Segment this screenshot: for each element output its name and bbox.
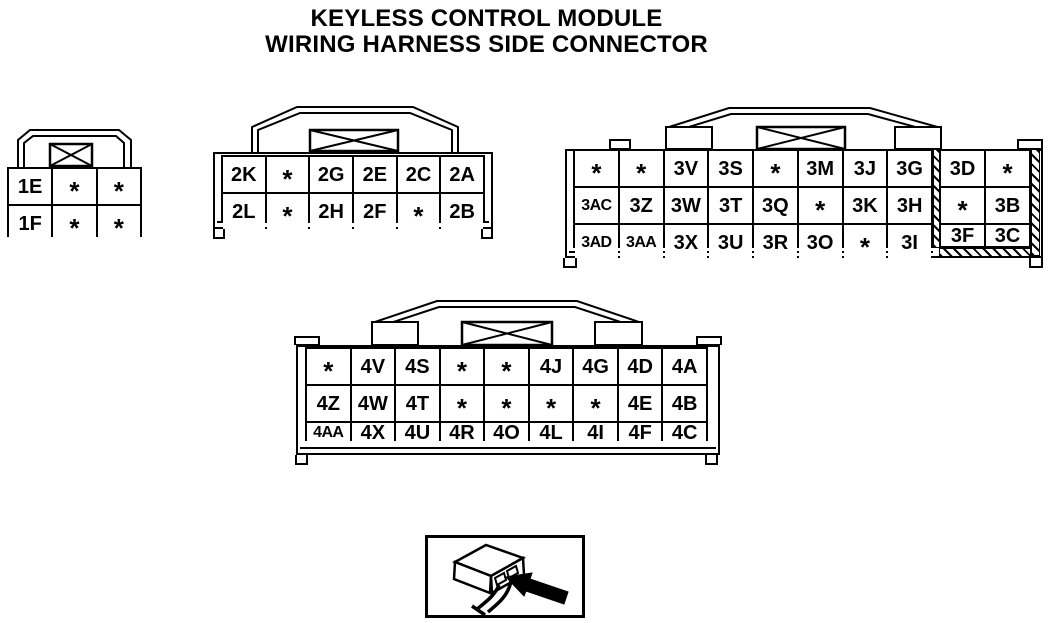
pin-cell-unused: *	[441, 349, 484, 384]
pin-cell-2F: 2F	[354, 194, 396, 229]
pin-cell-3C: 3C	[986, 225, 1029, 246]
pin-cell-2E: 2E	[354, 157, 396, 192]
pin-cell-3O: 3O	[799, 225, 842, 260]
pin-cell-3S: 3S	[709, 151, 752, 186]
pin-cell-1E: 1E	[9, 169, 51, 204]
pin-cell-unused: *	[620, 151, 663, 186]
connector-3-pin-grid: **3V3S*3M3J3G3AC3Z3W3T3Q*3K3H3AD3AA3X3U3…	[573, 149, 933, 248]
pin-cell-4I: 4I	[574, 423, 617, 443]
pin-cell-unused: *	[267, 194, 309, 229]
pin-cell-4J: 4J	[530, 349, 573, 384]
pin-cell-unused: *	[98, 169, 140, 204]
pin-cell-unused: *	[398, 194, 440, 229]
pin-cell-4F: 4F	[619, 423, 662, 443]
pin-cell-3I: 3I	[888, 225, 931, 260]
pin-cell-4B: 4B	[663, 386, 706, 421]
pin-cell-4A: 4A	[663, 349, 706, 384]
pin-cell-2C: 2C	[398, 157, 440, 192]
pin-cell-3W: 3W	[665, 188, 708, 223]
pin-cell-unused: *	[986, 151, 1029, 186]
pin-cell-2H: 2H	[310, 194, 352, 229]
pin-cell-unused: *	[530, 386, 573, 421]
pin-cell-unused: *	[485, 386, 528, 421]
pin-cell-3V: 3V	[665, 151, 708, 186]
connector-3-right-foot	[1029, 258, 1043, 268]
pin-cell-3Z: 3Z	[620, 188, 663, 223]
pin-cell-unused: *	[53, 169, 95, 204]
pin-cell-unused: *	[574, 386, 617, 421]
pin-cell-4C: 4C	[663, 423, 706, 443]
pin-cell-2G: 2G	[310, 157, 352, 192]
connector-1-latch-icon	[7, 127, 142, 167]
connector-4-pin-grid: *4V4S**4J4G4D4A4Z4W4T****4E4B4AA4X4U4R4O…	[305, 347, 708, 441]
connector-4-latch-icon	[293, 298, 723, 345]
connector-4-left-foot	[295, 455, 308, 465]
pin-cell-unused: *	[941, 188, 984, 223]
pin-cell-3R: 3R	[754, 225, 797, 260]
connector-4-right-foot	[705, 455, 718, 465]
pin-cell-3Q: 3Q	[754, 188, 797, 223]
connector-4: *4V4S**4J4G4D4A4Z4W4T****4E4B4AA4X4U4R4O…	[293, 298, 723, 470]
pin-cell-3D: 3D	[941, 151, 984, 186]
pin-cell-3H: 3H	[888, 188, 931, 223]
pin-cell-3F: 3F	[941, 225, 984, 246]
pin-cell-3U: 3U	[709, 225, 752, 260]
pin-cell-unused: *	[53, 206, 95, 241]
connector-2-left-foot	[213, 229, 225, 239]
pin-cell-unused: *	[799, 188, 842, 223]
pin-cell-unused: *	[575, 151, 618, 186]
connector-1: 1E**1F**	[7, 127, 142, 237]
pin-cell-3AD: 3AD	[575, 225, 618, 260]
pin-cell-4AA: 4AA	[307, 423, 350, 443]
pin-cell-4W: 4W	[352, 386, 395, 421]
pin-cell-2A: 2A	[441, 157, 483, 192]
title-line-1: KEYLESS CONTROL MODULE	[0, 6, 973, 32]
pin-cell-unused: *	[485, 349, 528, 384]
pin-cell-3M: 3M	[799, 151, 842, 186]
pin-cell-3J: 3J	[844, 151, 887, 186]
title-line-2: WIRING HARNESS SIDE CONNECTOR	[0, 32, 973, 58]
legend-box	[425, 535, 585, 618]
connector-2-latch-icon	[213, 105, 493, 152]
connector-3-right-key-strip	[1031, 149, 1040, 256]
connector-3-latch-icon	[563, 106, 1045, 149]
pin-cell-4T: 4T	[396, 386, 439, 421]
pin-cell-4O: 4O	[485, 423, 528, 443]
pin-cell-2L: 2L	[223, 194, 265, 229]
pin-cell-2K: 2K	[223, 157, 265, 192]
pin-cell-unused: *	[307, 349, 350, 384]
pin-cell-3K: 3K	[844, 188, 887, 223]
connector-2: 2K*2G2E2C2A2L*2H2F*2B	[213, 105, 493, 241]
connector-4-bottom-rail	[300, 447, 716, 449]
pin-cell-4V: 4V	[352, 349, 395, 384]
pin-cell-3AA: 3AA	[620, 225, 663, 260]
pin-cell-4S: 4S	[396, 349, 439, 384]
pin-cell-4X: 4X	[352, 423, 395, 443]
pin-cell-4Z: 4Z	[307, 386, 350, 421]
connector-3-left-foot	[563, 258, 577, 268]
pin-cell-4E: 4E	[619, 386, 662, 421]
pin-cell-3AC: 3AC	[575, 188, 618, 223]
connector-3: **3V3S*3M3J3G3AC3Z3W3T3Q*3K3H3AD3AA3X3U3…	[563, 106, 1045, 268]
pin-cell-1F: 1F	[9, 206, 51, 241]
connector-3-sub-pin-grid: 3D**3B3F3C	[939, 149, 1031, 248]
pin-cell-4R: 4R	[441, 423, 484, 443]
pin-cell-3T: 3T	[709, 188, 752, 223]
pin-cell-unused: *	[441, 386, 484, 421]
pin-cell-3B: 3B	[986, 188, 1029, 223]
page-title: KEYLESS CONTROL MODULE WIRING HARNESS SI…	[0, 6, 973, 58]
connector-3-bottom-key-strip	[939, 248, 1031, 257]
pin-cell-4L: 4L	[530, 423, 573, 443]
connector-2-pin-grid: 2K*2G2E2C2A2L*2H2F*2B	[221, 155, 485, 223]
pin-cell-unused: *	[754, 151, 797, 186]
pin-cell-4U: 4U	[396, 423, 439, 443]
pin-cell-3G: 3G	[888, 151, 931, 186]
pin-cell-unused: *	[267, 157, 309, 192]
pin-cell-unused: *	[98, 206, 140, 241]
pin-cell-4G: 4G	[574, 349, 617, 384]
connector-2-right-foot	[481, 229, 493, 239]
pin-cell-unused: *	[844, 225, 887, 260]
diagram-canvas: KEYLESS CONTROL MODULE WIRING HARNESS SI…	[0, 0, 1048, 623]
connector-1-pin-grid: 1E**1F**	[7, 167, 142, 237]
pin-cell-2B: 2B	[441, 194, 483, 229]
pin-cell-4D: 4D	[619, 349, 662, 384]
pin-cell-3X: 3X	[665, 225, 708, 260]
connector-rear-view-icon	[428, 538, 582, 615]
